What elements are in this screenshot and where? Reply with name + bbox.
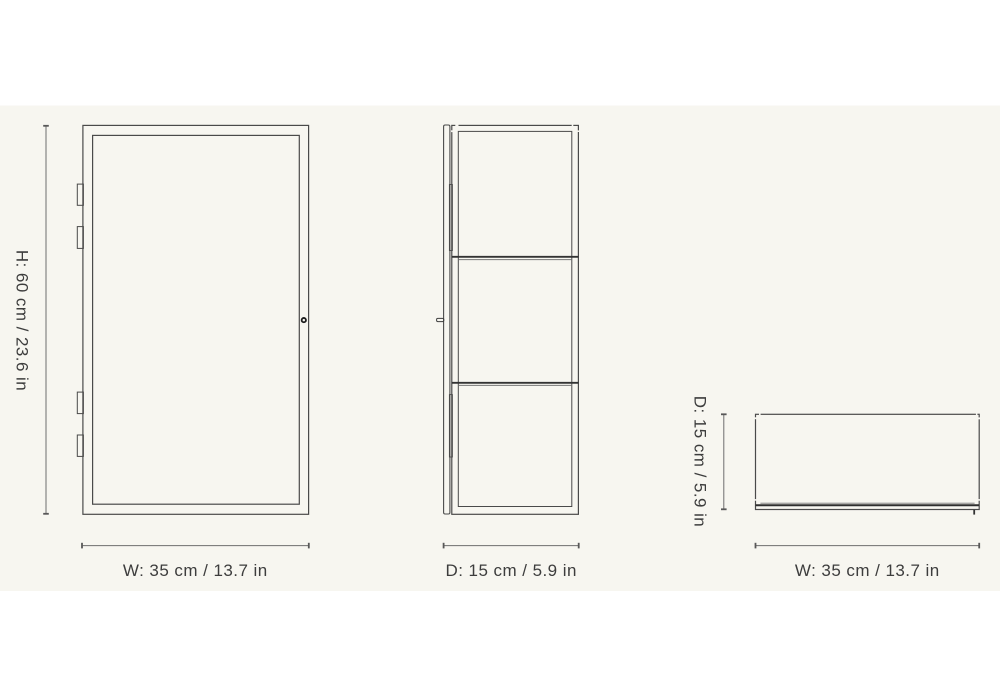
svg-text:D: 15 cm / 5.9 in: D: 15 cm / 5.9 in <box>445 561 576 580</box>
svg-text:D: 15 cm / 5.9 in: D: 15 cm / 5.9 in <box>691 396 710 527</box>
svg-text:W: 35 cm / 13.7 in: W: 35 cm / 13.7 in <box>795 561 940 580</box>
svg-text:H: 60 cm / 23.6 in: H: 60 cm / 23.6 in <box>13 250 32 391</box>
svg-text:W: 35 cm / 13.7 in: W: 35 cm / 13.7 in <box>123 561 268 580</box>
